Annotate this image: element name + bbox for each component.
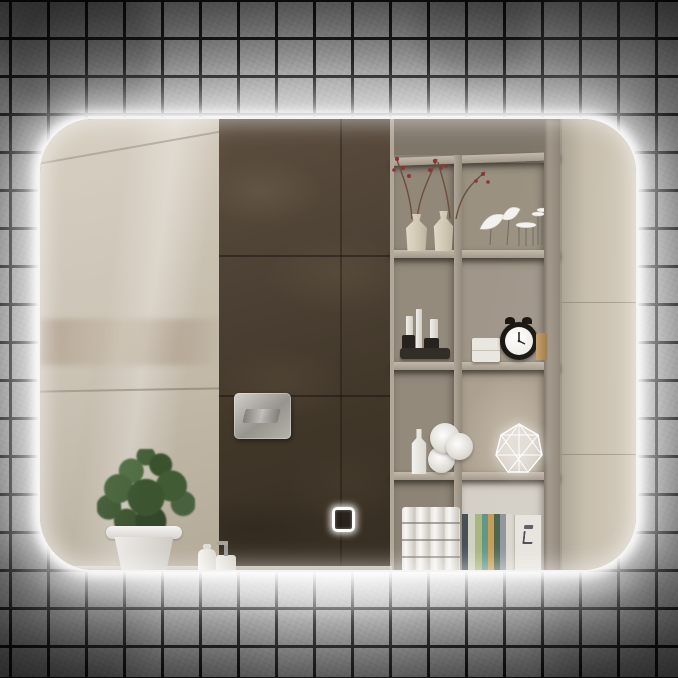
glass-sheen-overlay — [40, 119, 638, 572]
photo-canvas — [0, 0, 678, 678]
led-mirror — [38, 117, 638, 572]
